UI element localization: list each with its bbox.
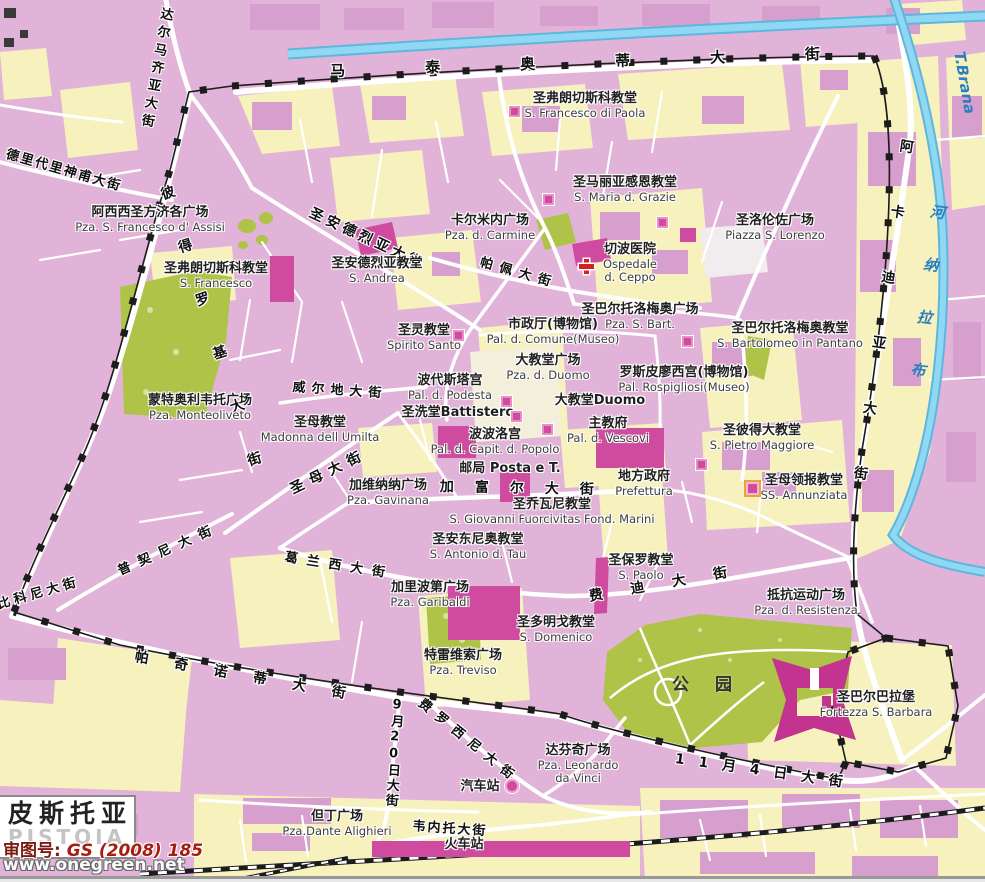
map-bottom-edge — [0, 876, 985, 882]
map-canvas — [0, 0, 985, 882]
pistoia-map: 马泰奥蒂大街达尔马齐亚大街德里代里神甫大街彼得罗基大街圣安德烈亚大街帕佩大街阿卡… — [0, 0, 985, 882]
website-watermark: www.onegreen.net — [3, 855, 185, 875]
map-title-cn: 皮斯托亚 — [8, 801, 134, 827]
train-station-building — [372, 841, 630, 857]
